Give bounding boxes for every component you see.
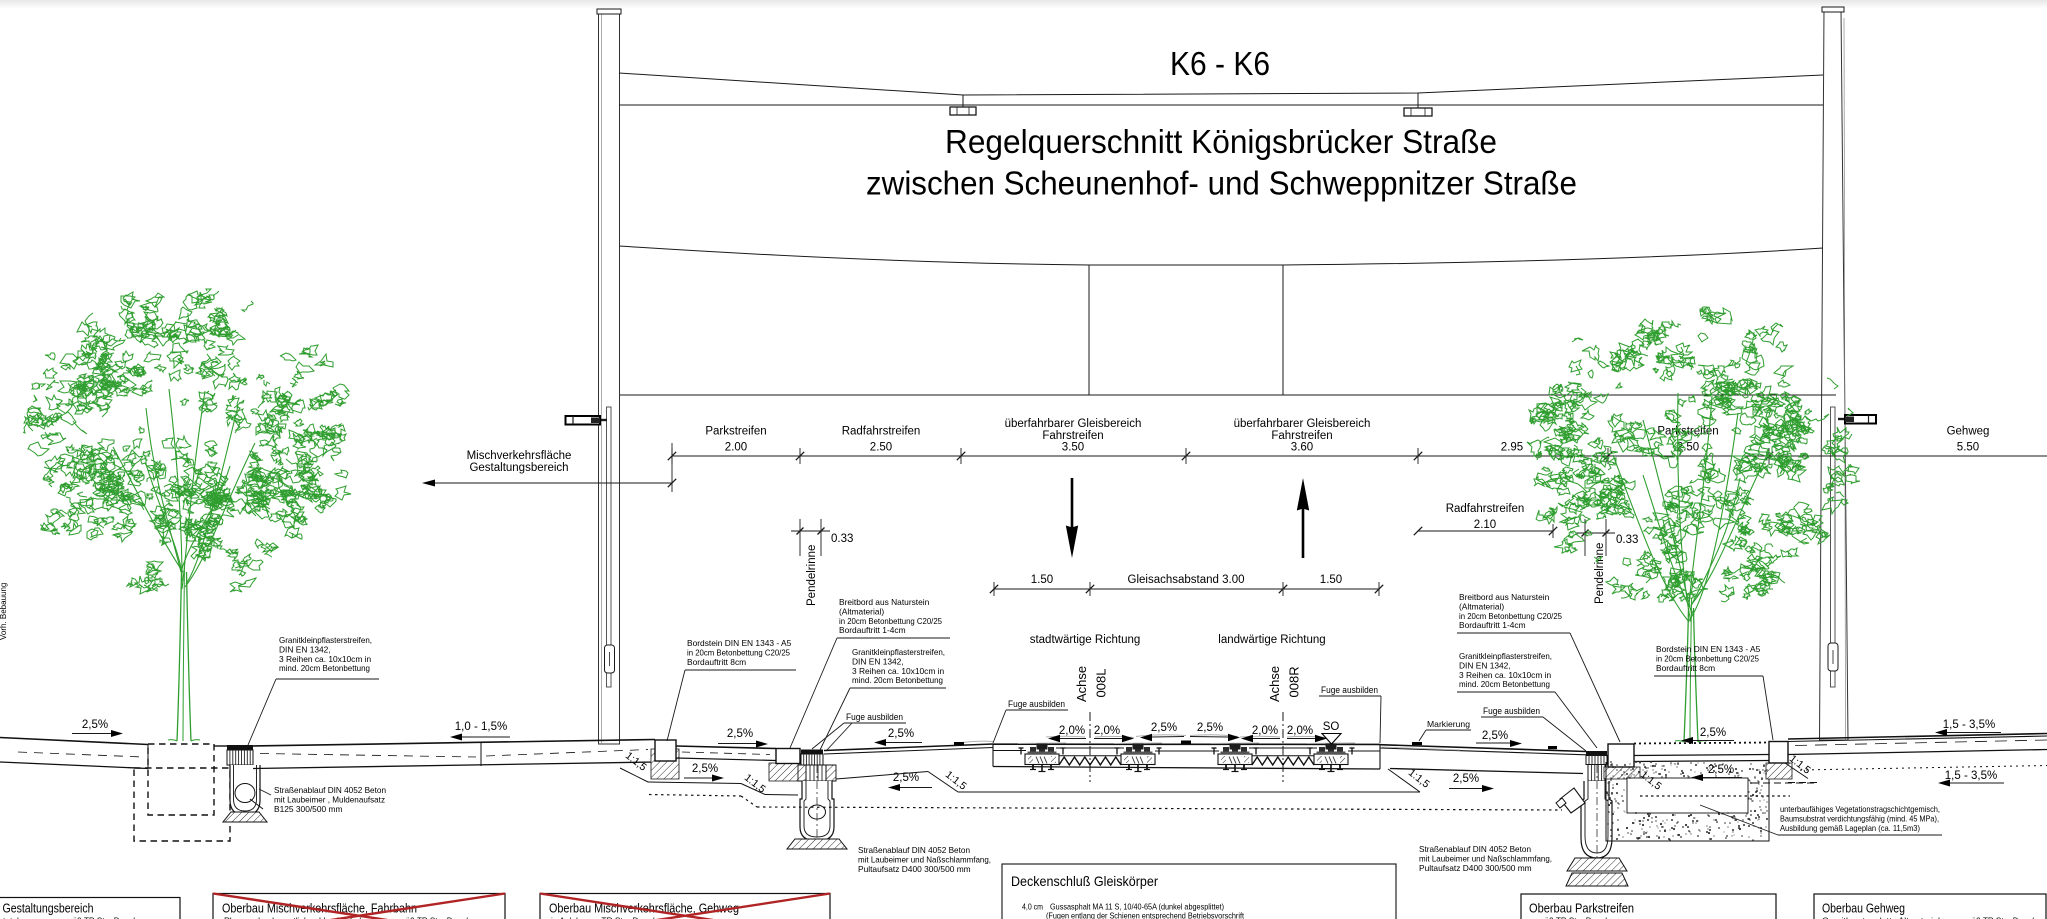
svg-text:SO: SO xyxy=(1323,721,1340,733)
svg-text:Vorh. Bebauung: Vorh. Bebauung xyxy=(0,583,8,640)
svg-text:008L: 008L xyxy=(1094,669,1109,698)
svg-text:2,5%: 2,5% xyxy=(1453,773,1479,785)
svg-text:0.33: 0.33 xyxy=(1616,534,1638,546)
svg-text:5.50: 5.50 xyxy=(1957,442,1979,454)
svg-text:Fuge ausbilden: Fuge ausbilden xyxy=(1483,706,1540,716)
svg-text:Bordauftritt 1-4cm: Bordauftritt 1-4cm xyxy=(839,625,906,635)
svg-text:2,5%: 2,5% xyxy=(727,728,753,740)
svg-text:Bordauftritt 1-4cm: Bordauftritt 1-4cm xyxy=(1459,620,1526,630)
svg-text:Ausbildung gemäß Lageplan (ca.: Ausbildung gemäß Lageplan (ca. 11,5m3) xyxy=(1780,823,1920,833)
svg-text:2,0%: 2,0% xyxy=(1059,725,1085,737)
svg-text:Gestaltungsbereich: Gestaltungsbereich xyxy=(3,902,94,916)
svg-text:008R: 008R xyxy=(1287,666,1302,697)
svg-text:2.00: 2.00 xyxy=(725,442,747,454)
svg-text:Fuge ausbilden: Fuge ausbilden xyxy=(1321,685,1378,695)
svg-text:mind. 20cm Betonbettung: mind. 20cm Betonbettung xyxy=(279,663,370,673)
svg-text:Pendelrinne: Pendelrinne xyxy=(1594,543,1606,604)
svg-text:3.50: 3.50 xyxy=(1062,442,1084,454)
svg-text:Parkstreifen: Parkstreifen xyxy=(705,426,766,438)
svg-text:2.10: 2.10 xyxy=(1474,519,1496,531)
svg-text:Achse: Achse xyxy=(1267,666,1282,702)
svg-text:zwischen Scheunenhof- und Schw: zwischen Scheunenhof- und Schweppnitzer … xyxy=(866,165,1577,202)
svg-text:gemäß TR Stra Dresden: gemäß TR Stra Dresden xyxy=(1529,916,1616,919)
svg-text:2,0%: 2,0% xyxy=(1252,725,1278,737)
svg-text:Radfahrstreifen: Radfahrstreifen xyxy=(1446,503,1525,515)
svg-text:Gestaltungsbereich: Gestaltungsbereich xyxy=(469,462,568,474)
svg-text:Oberbau Mischverkehrsfläche, F: Oberbau Mischverkehrsfläche, Fahrbahn xyxy=(222,902,417,916)
svg-text:2,5%: 2,5% xyxy=(1197,722,1223,734)
svg-text:Gehweg: Gehweg xyxy=(1947,426,1990,438)
svg-text:1,0 - 1,5%: 1,0 - 1,5% xyxy=(455,721,507,733)
svg-text:2,0%: 2,0% xyxy=(1094,725,1120,737)
svg-text:1.50: 1.50 xyxy=(1031,574,1053,586)
svg-text:Markierung: Markierung xyxy=(1427,719,1470,729)
svg-text:Fuge ausbilden: Fuge ausbilden xyxy=(1008,699,1065,709)
svg-text:gemäß TR Stra Dresden: gemäß TR Stra Dresden xyxy=(1956,916,2043,919)
svg-text:3.60: 3.60 xyxy=(1291,442,1313,454)
svg-text:überfahrbarer Gleisbereich: überfahrbarer Gleisbereich xyxy=(1005,418,1142,430)
svg-text:Oberbau Parkstreifen: Oberbau Parkstreifen xyxy=(1529,902,1634,916)
svg-text:Achse: Achse xyxy=(1074,666,1089,702)
svg-text:Bordauftritt 8cm: Bordauftritt 8cm xyxy=(1656,663,1715,673)
svg-text:Mischverkehrsfläche: Mischverkehrsfläche xyxy=(467,450,572,462)
svg-text:2,5%: 2,5% xyxy=(1151,722,1177,734)
svg-text:2.50: 2.50 xyxy=(870,442,892,454)
svg-text:K6 - K6: K6 - K6 xyxy=(1170,46,1270,83)
svg-text:total: total xyxy=(3,916,19,919)
svg-text:Regelquerschnitt Königsbrücke: Regelquerschnitt Königsbrücker Straße xyxy=(945,123,1497,160)
svg-text:landwärtige Richtung: landwärtige Richtung xyxy=(1218,634,1325,646)
svg-text:4,0 cm: 4,0 cm xyxy=(1022,902,1043,912)
svg-text:(Fugen entlang der Schienen en: (Fugen entlang der Schienen entsprechend… xyxy=(1046,911,1245,919)
svg-text:Fahrstreifen: Fahrstreifen xyxy=(1042,430,1103,442)
svg-text:mind. 20cm Betonbettung: mind. 20cm Betonbettung xyxy=(852,675,943,685)
svg-text:Oberbau Gehweg: Oberbau Gehweg xyxy=(1822,902,1905,916)
svg-text:2,5%: 2,5% xyxy=(82,719,108,731)
svg-text:1,5 - 3,5%: 1,5 - 3,5% xyxy=(1943,719,1995,731)
svg-text:Deckenschluß Gleiskörper: Deckenschluß Gleiskörper xyxy=(1011,874,1158,889)
svg-text:1.50: 1.50 xyxy=(1320,574,1342,586)
svg-text:2,5%: 2,5% xyxy=(888,728,914,740)
svg-text:überfahrbarer Gleisbereich: überfahrbarer Gleisbereich xyxy=(1234,418,1371,430)
svg-text:Pultaufsatz D400 300/500 mm: Pultaufsatz D400 300/500 mm xyxy=(1419,863,1532,873)
svg-text:1,5 - 3,5%: 1,5 - 3,5% xyxy=(1945,770,1997,782)
svg-text:Pendelrinne: Pendelrinne xyxy=(806,545,818,606)
svg-text:2,5%: 2,5% xyxy=(1700,727,1726,739)
svg-text:2.95: 2.95 xyxy=(1501,442,1523,454)
svg-text:2,5%: 2,5% xyxy=(1708,764,1734,776)
svg-text:2,0%: 2,0% xyxy=(1287,725,1313,737)
svg-text:in Anlehnung TR Stra Dresden: in Anlehnung TR Stra Dresden xyxy=(551,916,664,919)
svg-text:gemäß TR Stra Dresden: gemäß TR Stra Dresden xyxy=(390,916,477,919)
svg-text:0.33: 0.33 xyxy=(831,533,853,545)
svg-text:stadtwärtige Richtung: stadtwärtige Richtung xyxy=(1030,634,1141,646)
svg-text:Gleisachsabstand 3.00: Gleisachsabstand 3.00 xyxy=(1128,574,1245,586)
svg-text:mind. 20cm Betonbettung: mind. 20cm Betonbettung xyxy=(1459,679,1550,689)
svg-text:2,5%: 2,5% xyxy=(692,763,718,775)
svg-text:Granitkrustenplatte Altmateria: Granitkrustenplatte Altmaterial xyxy=(1822,916,1940,919)
svg-text:B125 300/500 mm: B125 300/500 mm xyxy=(274,804,342,814)
svg-text:Pultaufsatz D400 300/500 mm: Pultaufsatz D400 300/500 mm xyxy=(858,864,971,874)
svg-text:Radfahrstreifen: Radfahrstreifen xyxy=(842,426,921,438)
svg-text:Bordauftritt 8cm: Bordauftritt 8cm xyxy=(687,657,746,667)
svg-text:gemäß TR Stra Dresden: gemäß TR Stra Dresden xyxy=(57,916,144,919)
svg-text:2,5%: 2,5% xyxy=(893,772,919,784)
svg-text:Fahrstreifen: Fahrstreifen xyxy=(1271,430,1332,442)
svg-text:2,5%: 2,5% xyxy=(1482,730,1508,742)
svg-text:Fuge ausbilden: Fuge ausbilden xyxy=(846,712,903,722)
